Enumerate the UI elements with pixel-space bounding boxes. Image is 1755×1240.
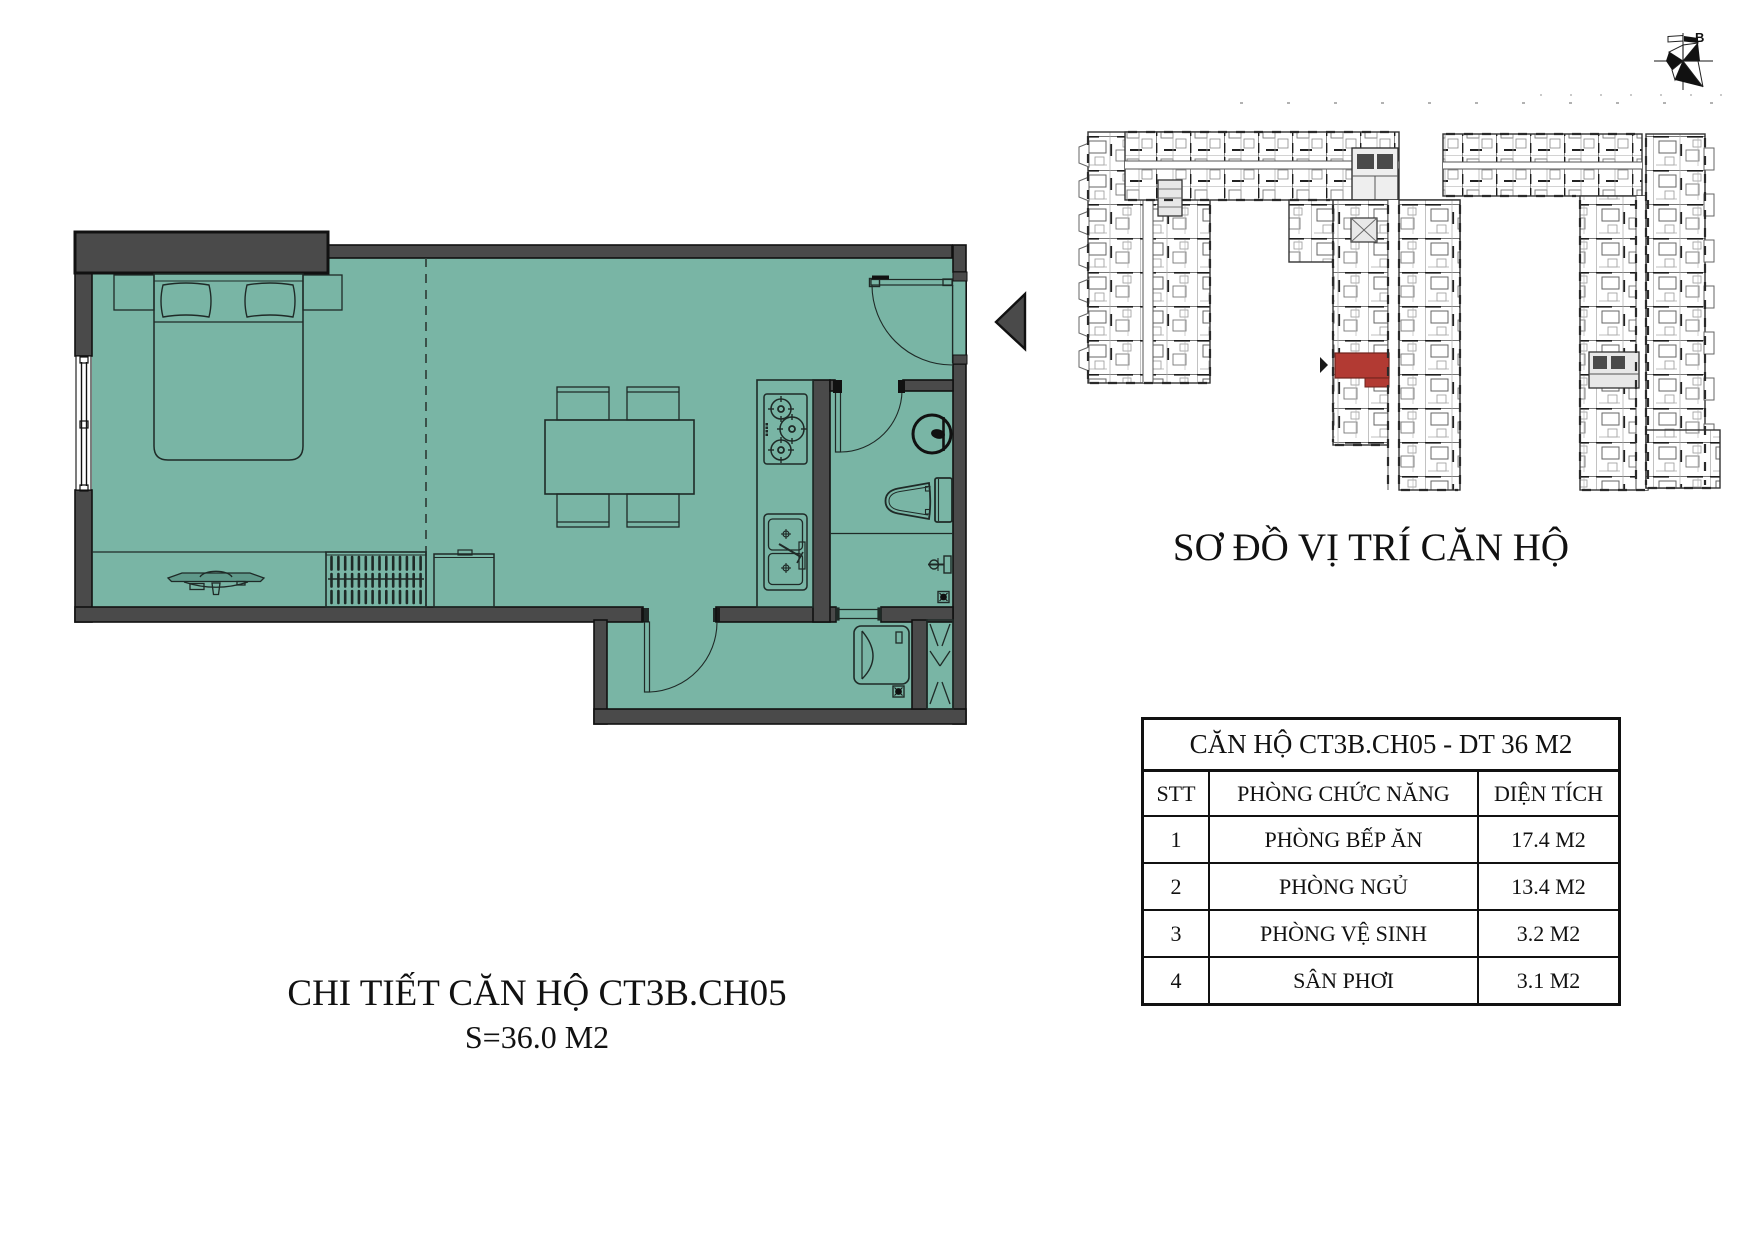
svg-text:B: B [1695, 30, 1704, 45]
